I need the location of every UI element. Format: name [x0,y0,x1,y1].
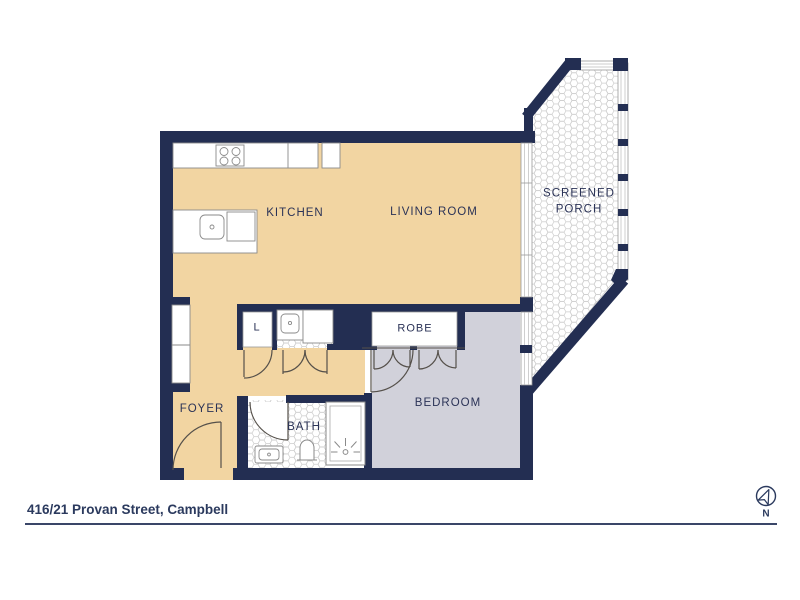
living-room-porch-glazing [521,143,532,297]
foyer-label: FOYER [180,402,225,418]
fridge-space [322,143,340,168]
address-title: 416/21 Provan Street, Campbell [27,502,228,517]
robe-label: ROBE [397,322,432,337]
kitchen-bench [173,210,257,253]
footer-rule [25,523,777,525]
compass-icon [757,487,776,506]
shower [326,402,365,465]
kitchen-counter-top [173,143,340,168]
screened-porch-label: SCREENED PORCH [543,186,615,217]
living-room-label: LIVING ROOM [390,205,478,221]
vanity [255,446,283,463]
linen-label: L [253,321,260,336]
foyer-cupboard [172,297,190,392]
floor-plan-page: KITCHEN LIVING ROOM SCREENED PORCH ROBE … [0,0,800,600]
laundry-nook [277,310,333,343]
compass-north-label: N [762,509,769,520]
bedroom-label: BEDROOM [415,396,481,412]
bedroom-window [520,312,532,385]
entry-opening [184,468,233,480]
kitchen-label: KITCHEN [266,206,323,222]
bath-label: BATH [287,420,321,436]
